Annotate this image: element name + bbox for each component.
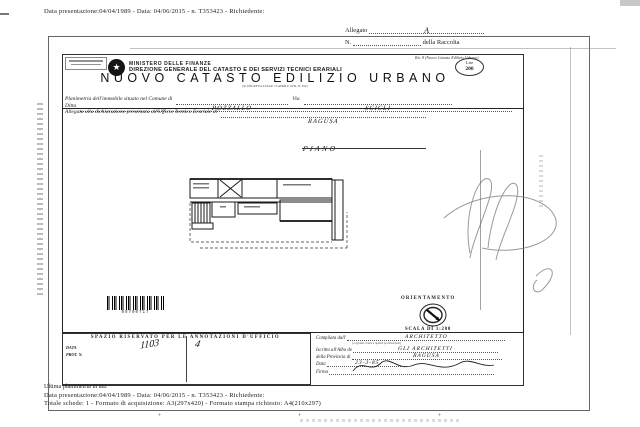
corner-stamp bbox=[65, 57, 107, 70]
albo-line: GLI ARCHITETTI bbox=[353, 346, 498, 353]
allegato-label: Allegato bbox=[345, 27, 367, 34]
compilata-row: Compilata dall' ARCHITETTO bbox=[316, 334, 505, 341]
sheet-edge-line bbox=[130, 48, 616, 49]
allegato-row: Allegato A bbox=[345, 26, 484, 34]
presentation-data-line: Data presentazione:04/04/1989 - Data: 04… bbox=[44, 8, 265, 15]
register-mark-3 bbox=[438, 404, 441, 422]
footer-line3: Totale schede: 1 - Formato di acquisizio… bbox=[44, 400, 321, 407]
annotations-data-label: DATA bbox=[66, 345, 77, 350]
vertical-scan-line bbox=[480, 150, 481, 310]
compilata-line: ARCHITETTO bbox=[347, 334, 505, 341]
albo-value: GLI ARCHITETTI bbox=[398, 346, 454, 352]
piano-caption: PIANO bbox=[303, 138, 338, 156]
orientation-label: ORIENTAMENTO bbox=[401, 296, 455, 301]
firma-label: Firma bbox=[316, 370, 328, 375]
footer-line1: Ultima planimetria in atti bbox=[44, 383, 107, 390]
right-fold-line bbox=[570, 47, 571, 335]
scanned-cadastral-document: Data presentazione:04/04/1989 - Data: 04… bbox=[0, 0, 640, 427]
footer-line2: Data presentazione:04/04/1989 - Data: 04… bbox=[44, 392, 265, 399]
floor-plan-drawing bbox=[180, 170, 370, 265]
barcode-number: 09700717 bbox=[107, 311, 164, 315]
pen-scribble bbox=[440, 158, 570, 298]
scan-artifact-dash bbox=[0, 13, 9, 15]
barcode bbox=[107, 296, 164, 310]
compiler-data-label: Data bbox=[316, 362, 326, 367]
piano-underline bbox=[302, 148, 426, 149]
compilata-note: (cognome, nome e qualità professionale) bbox=[352, 341, 401, 345]
allegato-value: A bbox=[424, 26, 429, 35]
annotations-prot-label: PROT. N. bbox=[66, 352, 83, 357]
scale-label: SCALA DI 1:200 bbox=[405, 327, 451, 332]
annotations-divider bbox=[186, 336, 187, 382]
scan-artifact-corner bbox=[620, 0, 640, 6]
scan-artifact-bottom bbox=[300, 419, 460, 422]
form-title: NUOVO CATASTO EDILIZIO URBANO bbox=[75, 71, 475, 85]
compilata-value: ARCHITETTO bbox=[404, 334, 447, 340]
allegato-dotted-line: A bbox=[369, 26, 484, 34]
left-margin-stamp bbox=[37, 100, 43, 295]
albo-row: Iscritto all'Albo de GLI ARCHITETTI bbox=[316, 346, 498, 353]
compass-icon bbox=[419, 303, 447, 327]
compilata-label: Compilata dall' bbox=[316, 336, 346, 341]
signature-scribble bbox=[348, 355, 498, 377]
